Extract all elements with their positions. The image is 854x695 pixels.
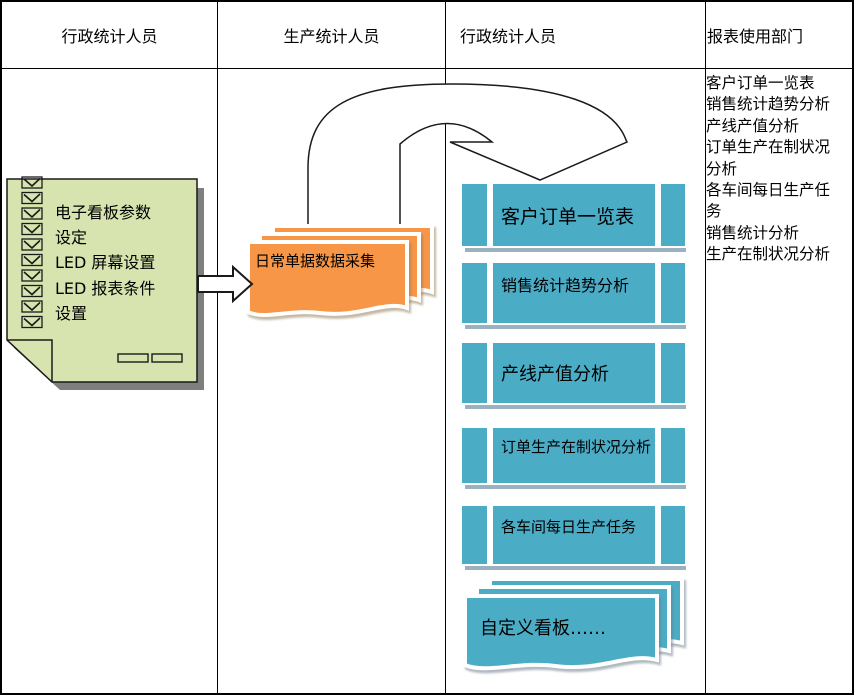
process-box-label: 各车间每日生产任务	[501, 516, 636, 537]
orange-stack-label: 日常单据数据采集	[255, 250, 375, 271]
note-line: 设置	[55, 300, 87, 324]
report-item: 销售统计趋势分析	[706, 94, 840, 115]
report-item: 客户订单一览表	[706, 73, 840, 94]
box-side-bar	[462, 428, 487, 483]
report-item: 产线产值分析	[706, 116, 840, 137]
process-box-daily-tasks: 各车间每日生产任务	[462, 506, 685, 564]
process-box-label: 产线产值分析	[501, 360, 609, 386]
note-line: LED 屏幕设置	[55, 249, 155, 273]
process-box-label: 订单生产在制状况分析	[501, 436, 651, 457]
box-side-bar	[661, 506, 685, 564]
report-item: 各车间每日生产任务	[706, 180, 840, 223]
note-line: LED 报表条件	[55, 275, 155, 299]
box-side-bar	[661, 343, 685, 403]
report-item: 销售统计分析	[706, 223, 840, 244]
box-shadow	[465, 405, 686, 409]
process-box-label: 客户订单一览表	[501, 202, 634, 229]
report-item: 订单生产在制状况分析	[706, 137, 840, 180]
box-side-bar	[462, 343, 487, 403]
report-list: 客户订单一览表 销售统计趋势分析 产线产值分析 订单生产在制状况分析 各车间每日…	[706, 73, 840, 266]
process-box-customer-orders: 客户订单一览表	[462, 184, 685, 246]
right-block-arrow	[198, 267, 252, 301]
swimlane-diagram: 行政统计人员 生产统计人员 行政统计人员 报表使用部门	[0, 0, 854, 695]
box-shadow	[465, 485, 686, 489]
box-side-bar	[462, 263, 487, 323]
process-box-wip-status: 订单生产在制状况分析	[462, 428, 685, 483]
note-line: 设定	[55, 224, 87, 248]
box-side-bar	[661, 184, 685, 246]
process-box-line-output: 产线产值分析	[462, 343, 685, 403]
box-shadow	[465, 248, 686, 252]
box-shadow	[465, 325, 686, 329]
box-side-bar	[462, 184, 487, 246]
box-side-bar	[462, 506, 487, 564]
blue-stack-label: 自定义看板……	[480, 614, 606, 640]
report-item: 生产在制状况分析	[706, 244, 840, 265]
note-line: 电子看板参数	[55, 199, 151, 223]
box-side-bar	[661, 263, 685, 323]
process-box-sales-trend: 销售统计趋势分析	[462, 263, 685, 323]
process-box-label: 销售统计趋势分析	[501, 272, 629, 296]
box-shadow	[465, 566, 686, 570]
box-side-bar	[661, 428, 685, 483]
